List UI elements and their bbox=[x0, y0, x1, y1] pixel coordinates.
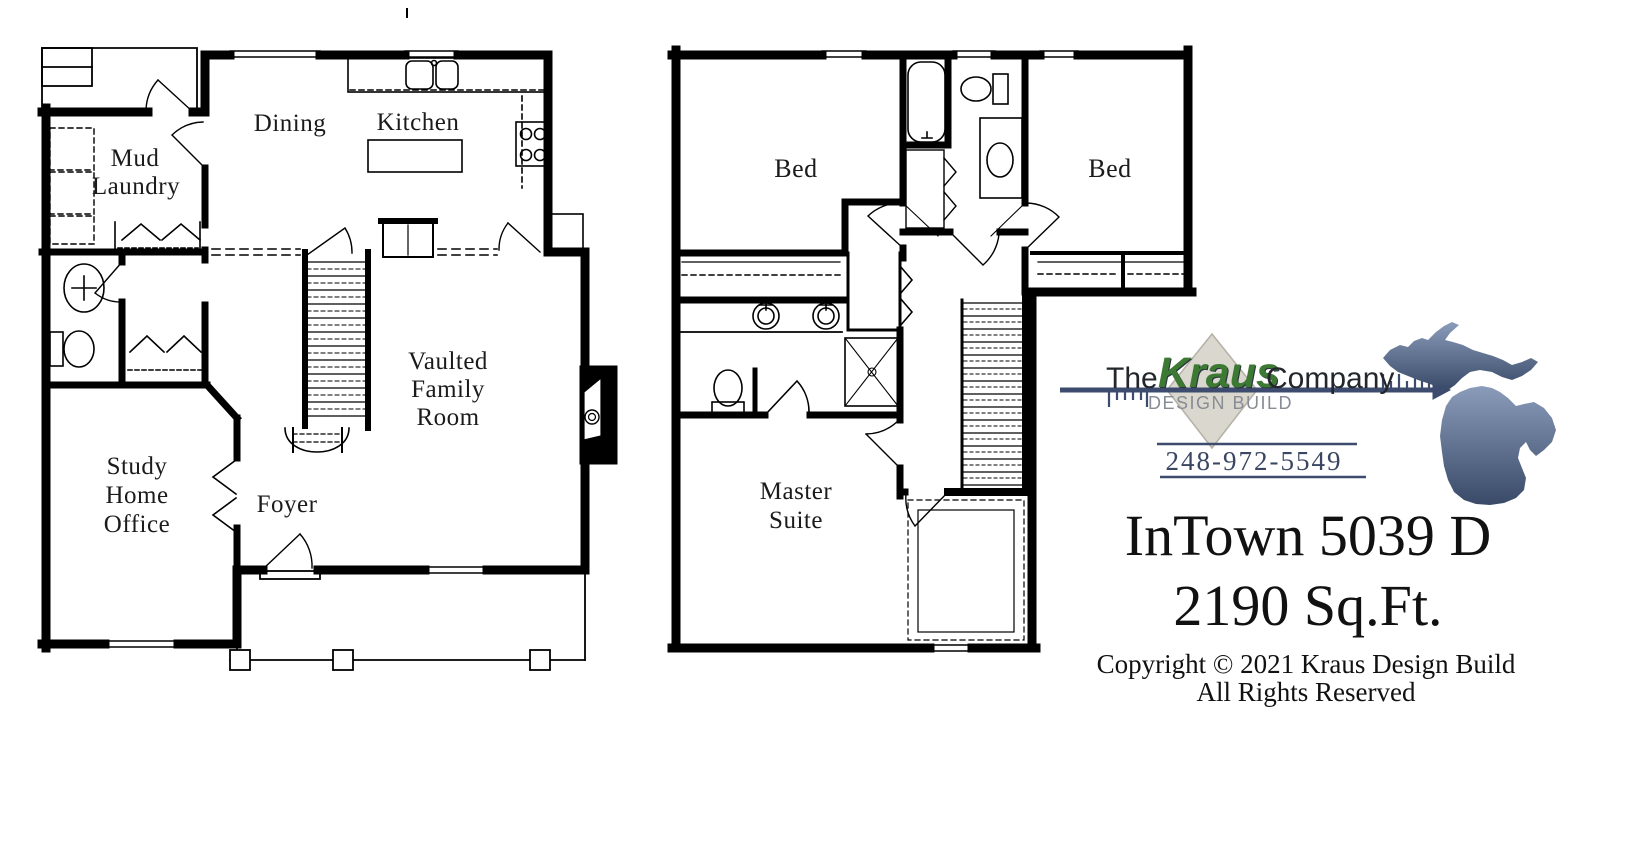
brand-logo-graphics bbox=[1060, 322, 1556, 505]
mud-closet bbox=[115, 222, 200, 252]
porch-column bbox=[333, 650, 353, 670]
brand-name: Kraus bbox=[1158, 349, 1280, 398]
kitchen-island bbox=[368, 140, 462, 172]
powder-bath bbox=[50, 264, 104, 367]
brand-phone: 248-972-5549 bbox=[1166, 446, 1343, 477]
brand-the: The bbox=[1106, 362, 1158, 396]
room-label-laundry: Laundry bbox=[92, 173, 180, 201]
hall-closet-doors bbox=[900, 266, 912, 326]
michigan-map bbox=[1383, 322, 1556, 505]
stairs-first-floor bbox=[285, 252, 368, 452]
refrigerator bbox=[381, 221, 435, 257]
floorplan-graphics bbox=[0, 0, 1647, 841]
room-label-bed-left: Bed bbox=[774, 154, 817, 184]
room-label-kitchen: Kitchen bbox=[377, 109, 460, 137]
pantry bbox=[550, 214, 583, 250]
copyright-line1: Copyright © 2021 Kraus Design Build bbox=[1097, 649, 1516, 680]
plan-area: 2190 Sq.Ft. bbox=[1173, 572, 1442, 639]
porch-column bbox=[530, 650, 550, 670]
bath-door bbox=[765, 381, 809, 415]
room-label-foyer: Foyer bbox=[257, 491, 318, 519]
brand-tagline: DESIGN BUILD bbox=[1148, 393, 1293, 414]
brand-company: Company bbox=[1266, 362, 1394, 396]
room-label-study-3: Office bbox=[104, 511, 170, 539]
room-label-master-2: Suite bbox=[769, 507, 823, 535]
master-bath bbox=[676, 303, 898, 415]
pedestal-sink bbox=[714, 370, 742, 406]
copyright-line2: All Rights Reserved bbox=[1197, 677, 1416, 708]
room-label-mud: Mud bbox=[111, 145, 160, 173]
bathtub bbox=[908, 62, 945, 142]
linen-closet bbox=[906, 150, 956, 228]
second-floor-plan bbox=[672, 50, 1192, 651]
page: Mud Laundry Dining Kitchen Vaulted Famil… bbox=[0, 0, 1647, 841]
room-label-master-1: Master bbox=[760, 478, 832, 506]
stoop bbox=[42, 48, 197, 110]
stairs-second-floor bbox=[948, 292, 1030, 492]
walk-in-closet bbox=[908, 500, 1024, 640]
hall-doors bbox=[868, 203, 1059, 265]
opening-dashes bbox=[212, 249, 497, 255]
room-label-bed-right: Bed bbox=[1088, 154, 1131, 184]
study-doors bbox=[213, 460, 236, 532]
first-floor-plan bbox=[42, 9, 617, 670]
room-label-study-2: Home bbox=[105, 482, 168, 510]
room-label-study-1: Study bbox=[107, 453, 168, 481]
hall-closet bbox=[128, 336, 202, 370]
room-label-dining: Dining bbox=[254, 110, 326, 138]
fireplace bbox=[580, 366, 617, 464]
room-label-family-1: Vaulted bbox=[408, 348, 488, 376]
washer-dryer bbox=[50, 128, 94, 244]
closet-rods bbox=[682, 274, 1184, 275]
room-label-family-3: Room bbox=[416, 404, 479, 432]
room-label-family-2: Family bbox=[411, 376, 485, 404]
porch-column bbox=[230, 650, 250, 670]
porch bbox=[230, 571, 585, 670]
hall-bath bbox=[961, 74, 1022, 198]
plan-title: InTown 5039 D bbox=[1125, 502, 1491, 569]
